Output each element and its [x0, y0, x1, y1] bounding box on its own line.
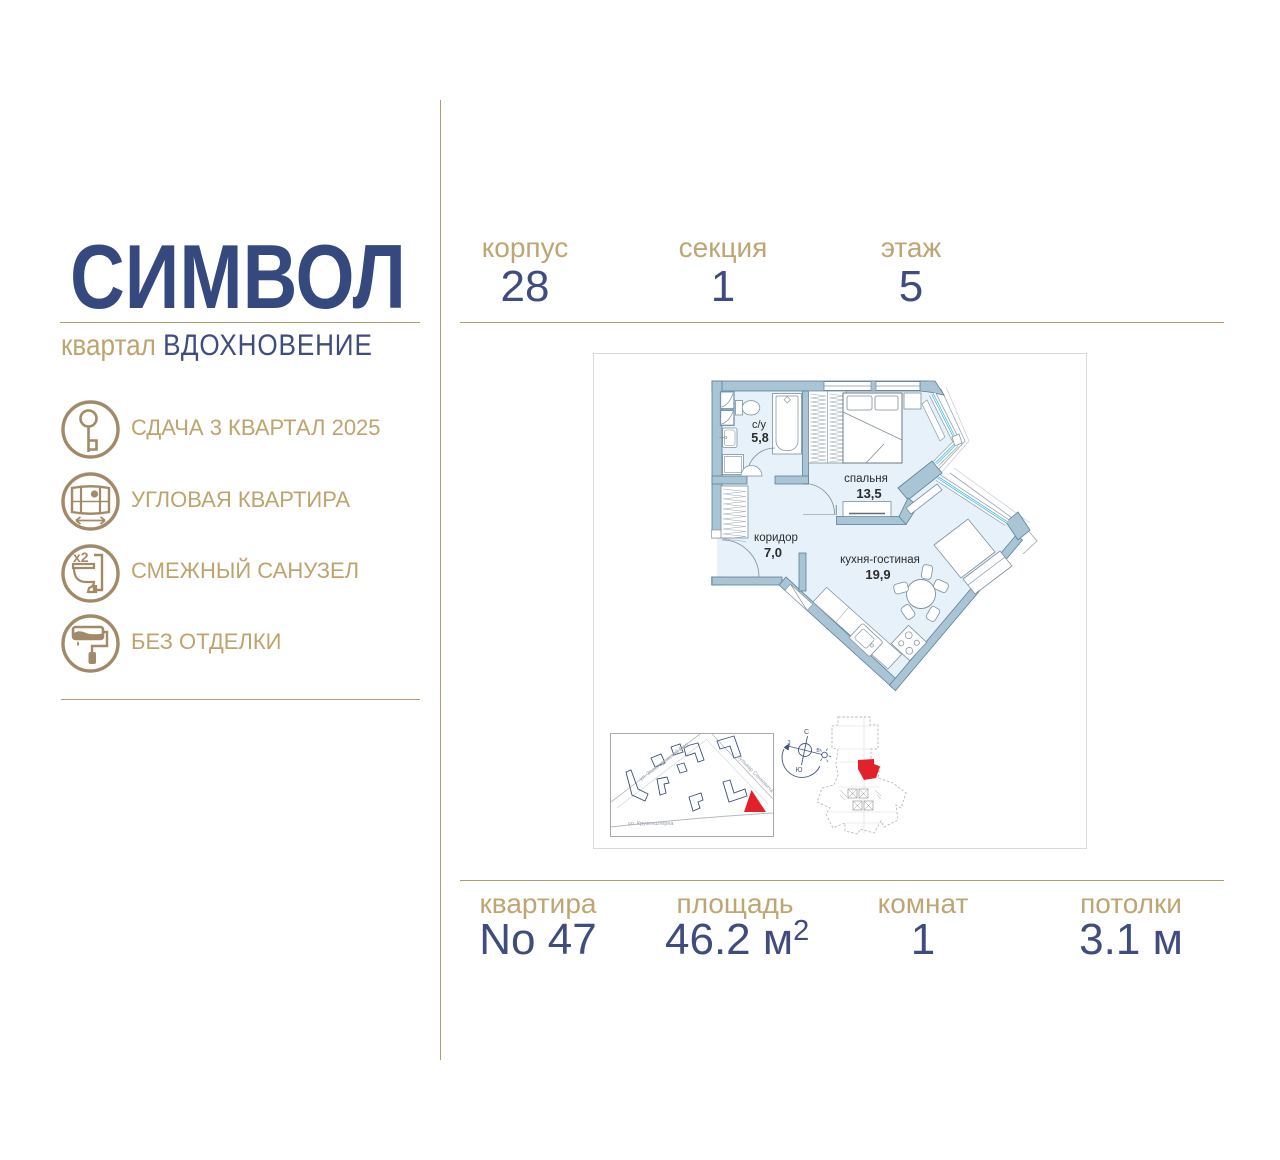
svg-text:с/у: с/у [752, 419, 767, 431]
svg-text:7,0: 7,0 [764, 545, 782, 560]
svg-text:коридор: коридор [754, 532, 798, 544]
svg-text:спальня: спальня [844, 473, 888, 485]
svg-text:x2: x2 [73, 549, 89, 565]
svg-text:кухня-гостиная: кухня-гостиная [840, 554, 920, 566]
svg-text:13,5: 13,5 [856, 486, 881, 501]
svg-text:5,8: 5,8 [751, 431, 768, 445]
svg-text:Ю: Ю [795, 767, 802, 774]
svg-text:С: С [804, 729, 809, 736]
svg-text:З: З [787, 740, 790, 746]
svg-text:19,9: 19,9 [865, 567, 890, 582]
svg-text:ул. Крузенштерна: ул. Крузенштерна [628, 821, 674, 827]
